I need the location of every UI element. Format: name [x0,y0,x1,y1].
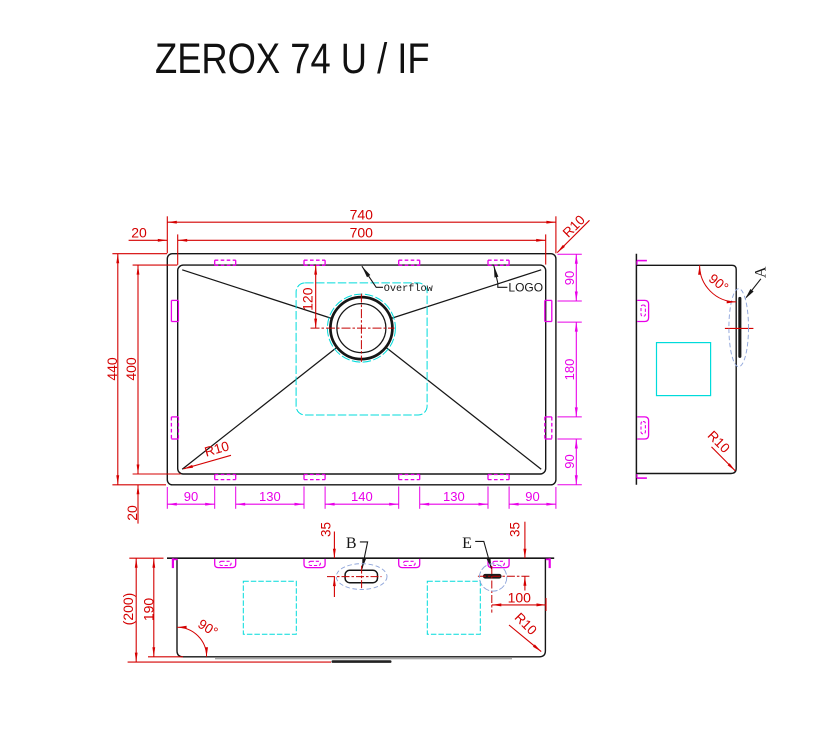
svg-text:190: 190 [141,598,157,622]
svg-text:(200): (200) [120,593,136,626]
svg-text:R10: R10 [560,212,588,240]
svg-text:130: 130 [259,489,281,504]
svg-text:120: 120 [299,287,315,311]
svg-text:R10: R10 [512,610,540,638]
svg-text:A: A [753,266,770,278]
svg-text:100: 100 [508,589,532,605]
svg-text:90: 90 [184,489,198,504]
svg-text:90°: 90° [195,616,220,640]
svg-text:20: 20 [131,225,147,241]
svg-text:90: 90 [525,489,539,504]
svg-text:B: B [346,535,357,552]
svg-text:R10: R10 [705,428,733,456]
svg-text:Overflow: Overflow [384,283,434,295]
svg-text:140: 140 [351,489,373,504]
svg-text:35: 35 [319,522,334,537]
svg-text:20: 20 [124,505,140,521]
svg-text:400: 400 [123,357,139,381]
svg-text:700: 700 [350,225,374,241]
svg-text:740: 740 [350,206,374,222]
svg-text:440: 440 [104,357,120,381]
svg-text:LOGO: LOGO [508,281,543,295]
svg-text:90: 90 [562,454,577,468]
svg-text:180: 180 [562,359,577,381]
svg-text:90: 90 [562,271,577,285]
svg-text:130: 130 [443,489,465,504]
svg-text:E: E [462,535,472,552]
svg-text:35: 35 [507,522,522,537]
svg-text:90°: 90° [706,271,731,295]
